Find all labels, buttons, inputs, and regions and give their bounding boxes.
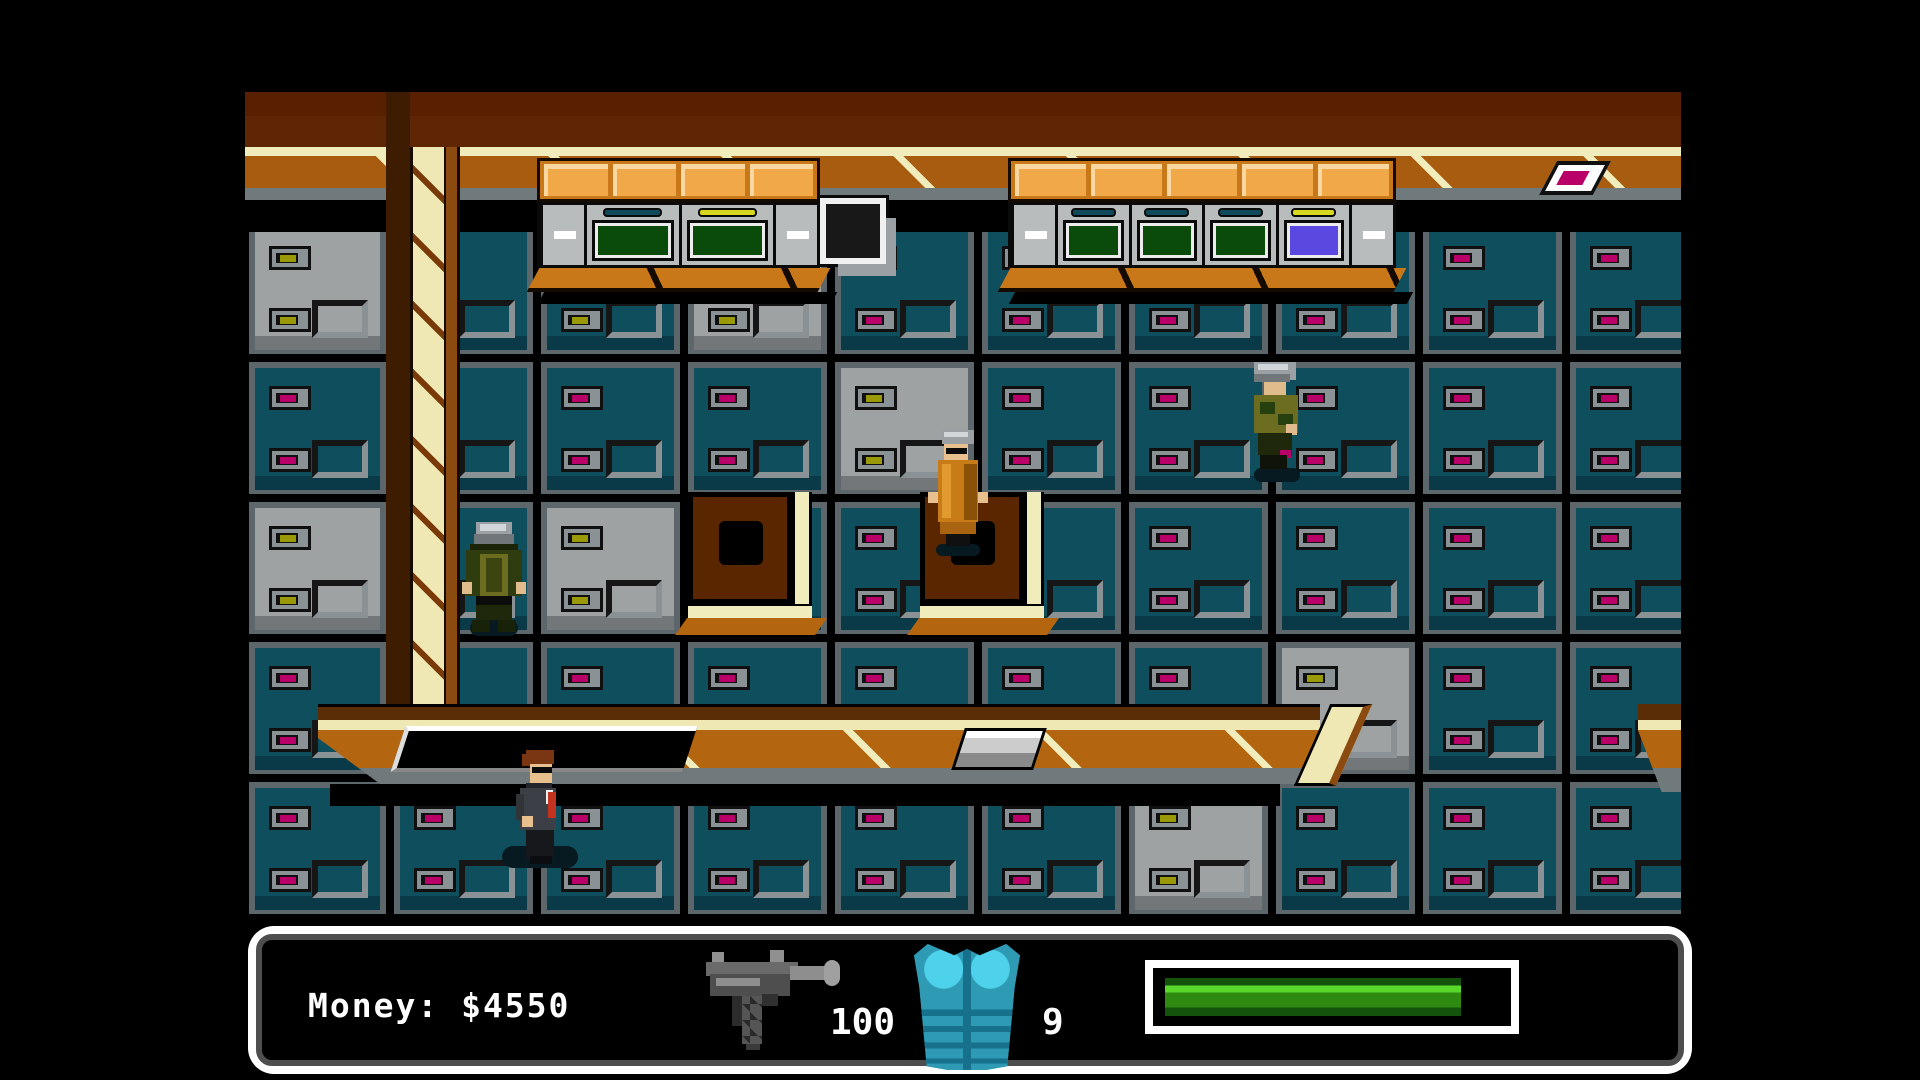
locker-face bbox=[541, 502, 680, 634]
locker-vent bbox=[1047, 580, 1103, 618]
locker-handle bbox=[708, 386, 750, 410]
locker-shade bbox=[1576, 476, 1681, 490]
locker-shade bbox=[1282, 616, 1409, 630]
locker-handle bbox=[1149, 868, 1191, 892]
character-part bbox=[978, 492, 988, 503]
locker-handle bbox=[561, 308, 603, 332]
bank-window-panel bbox=[1091, 164, 1162, 196]
locker-handle bbox=[269, 386, 311, 410]
locker-handle bbox=[855, 448, 897, 472]
bank-window-panel bbox=[613, 164, 677, 196]
locker-handle-bar bbox=[425, 877, 441, 884]
locker-shade bbox=[841, 336, 968, 350]
locker-shade bbox=[547, 896, 674, 910]
locker-handle-bar bbox=[280, 877, 296, 884]
locker-shade bbox=[1135, 616, 1262, 630]
character-part bbox=[486, 558, 502, 592]
locker-handle bbox=[1443, 246, 1485, 270]
machine-screen-green bbox=[690, 223, 766, 258]
character-part bbox=[532, 767, 552, 773]
locker-handle bbox=[1443, 526, 1485, 550]
locker-shade bbox=[694, 476, 821, 490]
machine-unit bbox=[1202, 205, 1276, 265]
uzi-icon-part bbox=[762, 994, 778, 1006]
locker-shade bbox=[1282, 336, 1409, 350]
uzi-icon-part bbox=[790, 966, 826, 980]
locker-face bbox=[1423, 362, 1562, 494]
machine-end-cap bbox=[773, 205, 817, 265]
vent-sill bbox=[905, 618, 1059, 638]
machine-slot bbox=[698, 208, 757, 217]
locker-vent bbox=[1194, 860, 1250, 898]
locker-handle bbox=[269, 308, 311, 332]
machine-screen-purple bbox=[1287, 223, 1342, 258]
walkway-trapdoor bbox=[951, 728, 1047, 770]
locker-handle bbox=[855, 386, 897, 410]
character-part bbox=[548, 792, 556, 818]
locker-handle bbox=[1149, 666, 1191, 690]
locker-handle-bar bbox=[1160, 877, 1176, 884]
locker-handle-bar bbox=[280, 737, 296, 744]
locker-handle bbox=[561, 448, 603, 472]
locker-handle-bar bbox=[719, 877, 735, 884]
health-bar-fill bbox=[1165, 978, 1461, 1016]
locker-handle-bar bbox=[1160, 675, 1176, 682]
bank-window-panel bbox=[750, 164, 814, 196]
character-part bbox=[516, 582, 526, 594]
locker-shade bbox=[1576, 616, 1681, 630]
locker-handle bbox=[1590, 588, 1632, 612]
locker-handle-bar bbox=[1601, 255, 1617, 262]
locker-handle bbox=[855, 308, 897, 332]
vent-sill bbox=[673, 618, 827, 638]
locker-handle bbox=[561, 588, 603, 612]
locker-handle bbox=[1296, 868, 1338, 892]
locker-handle-bar bbox=[866, 317, 882, 324]
locker-vent bbox=[1341, 440, 1397, 478]
machine-bank-right bbox=[1008, 158, 1396, 306]
machine-slot bbox=[1071, 208, 1116, 217]
ceiling-checker-band bbox=[245, 92, 1681, 116]
machine-bank-left bbox=[537, 158, 820, 306]
teal-locker bbox=[245, 358, 390, 498]
locker-face bbox=[1423, 222, 1562, 354]
locker-handle-bar bbox=[1013, 317, 1029, 324]
teal-locker bbox=[1419, 358, 1566, 498]
locker-handle-bar bbox=[1454, 395, 1470, 402]
machine-cap-dash bbox=[1363, 231, 1385, 239]
locker-shade bbox=[841, 896, 968, 910]
locker-vent bbox=[1194, 580, 1250, 618]
locker-handle bbox=[1149, 588, 1191, 612]
teal-locker bbox=[1419, 638, 1566, 778]
locker-handle-bar bbox=[1307, 597, 1323, 604]
locker-handle bbox=[1443, 868, 1485, 892]
locker-handle bbox=[1149, 308, 1191, 332]
locker-handle bbox=[1443, 588, 1485, 612]
locker-handle-bar bbox=[1601, 317, 1617, 324]
ledge-paper-mark bbox=[1556, 171, 1589, 185]
machine-end-cap bbox=[1349, 205, 1393, 265]
bank-sill bbox=[998, 268, 1407, 292]
teal-locker bbox=[1272, 498, 1419, 638]
vent-frame-right bbox=[792, 492, 812, 618]
character-part bbox=[944, 432, 968, 437]
locker-vent bbox=[1635, 440, 1681, 478]
bank-machine-row bbox=[1008, 202, 1396, 268]
ledge-shadow bbox=[245, 200, 1681, 232]
locker-handle bbox=[1443, 308, 1485, 332]
character-part bbox=[1260, 402, 1275, 414]
locker-handle-bar bbox=[1454, 877, 1470, 884]
vent-frame-bottom bbox=[688, 604, 812, 618]
locker-handle bbox=[269, 728, 311, 752]
character-part bbox=[1258, 364, 1288, 370]
locker-vent bbox=[1635, 860, 1681, 898]
character-part bbox=[1254, 374, 1290, 382]
locker-vent bbox=[1635, 580, 1681, 618]
machine-end-cap bbox=[540, 205, 584, 265]
machine-cap-dash bbox=[554, 231, 576, 239]
character-part bbox=[476, 596, 512, 605]
teal-locker bbox=[1566, 498, 1681, 638]
walkway-top-band bbox=[1638, 704, 1681, 720]
locker-handle bbox=[1002, 448, 1044, 472]
locker-handle bbox=[269, 246, 311, 270]
locker-shade bbox=[1429, 476, 1556, 490]
locker-shade bbox=[547, 616, 674, 630]
locker-shade bbox=[255, 476, 380, 490]
locker-handle bbox=[1296, 308, 1338, 332]
bank-window-panel bbox=[1015, 164, 1086, 196]
bank-window-panel bbox=[544, 164, 608, 196]
character-part bbox=[476, 605, 512, 620]
bank-window-panel bbox=[681, 164, 745, 196]
machine-unit bbox=[1055, 205, 1129, 265]
character-part bbox=[928, 492, 938, 503]
locker-shade bbox=[255, 896, 380, 910]
support-beam-side bbox=[446, 147, 460, 708]
locker-shade bbox=[1576, 896, 1681, 910]
locker-handle-bar bbox=[1601, 815, 1617, 822]
locker-shade bbox=[694, 336, 821, 350]
character-part bbox=[964, 464, 977, 520]
locker-face bbox=[1423, 642, 1562, 774]
uzi-icon-part bbox=[716, 978, 760, 986]
locker-handle-bar bbox=[719, 675, 735, 682]
locker-handle-bar bbox=[572, 317, 588, 324]
locker-handle-bar bbox=[719, 457, 735, 464]
locker-vent bbox=[1194, 440, 1250, 478]
character-part bbox=[946, 534, 970, 546]
locker-handle-bar bbox=[1160, 395, 1176, 402]
machine-screen-green bbox=[1066, 223, 1121, 258]
character-agent-orange bbox=[928, 430, 1008, 560]
locker-face bbox=[1129, 362, 1268, 494]
machine-screen-green bbox=[1213, 223, 1268, 258]
locker-handle bbox=[1296, 526, 1338, 550]
locker-handle-bar bbox=[280, 597, 296, 604]
character-part bbox=[942, 464, 951, 518]
locker-handle bbox=[1296, 666, 1338, 690]
teal-locker bbox=[1419, 498, 1566, 638]
locker-handle-bar bbox=[1454, 255, 1470, 262]
locker-handle-bar bbox=[866, 815, 882, 822]
ammo-count: 100 bbox=[830, 1002, 895, 1043]
locker-handle-bar bbox=[1601, 457, 1617, 464]
locker-vent bbox=[1488, 860, 1544, 898]
teal-locker bbox=[1419, 218, 1566, 358]
locker-handle bbox=[1590, 666, 1632, 690]
locker-handle bbox=[708, 448, 750, 472]
character-part bbox=[530, 856, 552, 864]
locker-handle-bar bbox=[1307, 535, 1323, 542]
locker-handle-bar bbox=[1454, 535, 1470, 542]
locker-vent bbox=[1341, 860, 1397, 898]
money-label: Money: $4550 bbox=[308, 986, 570, 1025]
locker-handle-bar bbox=[1013, 877, 1029, 884]
locker-handle-bar bbox=[1454, 317, 1470, 324]
ledge-surface bbox=[245, 156, 1681, 188]
bank-window-row bbox=[537, 158, 820, 202]
character-part bbox=[1260, 455, 1287, 469]
locker-handle-bar bbox=[280, 815, 296, 822]
locker-handle bbox=[708, 666, 750, 690]
locker-vent bbox=[312, 300, 368, 338]
locker-handle bbox=[855, 806, 897, 830]
game-screen[interactable]: Money: $4550 100 9 bbox=[0, 0, 1920, 1080]
locker-handle-bar bbox=[866, 535, 882, 542]
locker-handle bbox=[1002, 806, 1044, 830]
machine-cap-dash bbox=[787, 231, 809, 239]
locker-handle-bar bbox=[1160, 457, 1176, 464]
locker-vent bbox=[459, 300, 515, 338]
teal-locker bbox=[1419, 778, 1566, 918]
bank-window-panel bbox=[1318, 164, 1389, 196]
locker-vent bbox=[1488, 440, 1544, 478]
ledge-top-edge bbox=[245, 147, 1681, 156]
locker-shade bbox=[1429, 756, 1556, 770]
locker-handle-bar bbox=[866, 597, 882, 604]
locker-face bbox=[1570, 362, 1681, 494]
locker-handle-bar bbox=[1160, 815, 1176, 822]
locker-handle-bar bbox=[280, 457, 296, 464]
locker-shade bbox=[255, 616, 380, 630]
locker-handle-bar bbox=[1307, 675, 1323, 682]
locker-vent bbox=[1488, 580, 1544, 618]
locker-handle bbox=[414, 868, 456, 892]
locker-shade bbox=[255, 336, 380, 350]
locker-handle-bar bbox=[866, 675, 882, 682]
character-part bbox=[462, 582, 472, 594]
locker-handle-bar bbox=[280, 675, 296, 682]
locker-handle bbox=[855, 868, 897, 892]
locker-shade bbox=[547, 336, 674, 350]
locker-handle-bar bbox=[1601, 395, 1617, 402]
locker-handle bbox=[1149, 806, 1191, 830]
locker-handle-bar bbox=[1454, 675, 1470, 682]
locker-shade bbox=[988, 336, 1115, 350]
teal-locker bbox=[1566, 778, 1681, 918]
support-beam-shadow bbox=[386, 92, 410, 708]
locker-vent bbox=[900, 300, 956, 338]
character-player-suit bbox=[500, 750, 580, 880]
locker-shade bbox=[1135, 476, 1262, 490]
locker-handle bbox=[269, 588, 311, 612]
locker-handle-bar bbox=[719, 317, 735, 324]
locker-handle-bar bbox=[1307, 815, 1323, 822]
locker-face bbox=[1276, 502, 1415, 634]
vent-frame-bottom bbox=[920, 604, 1044, 618]
locker-handle-bar bbox=[719, 395, 735, 402]
locker-handle-bar bbox=[572, 535, 588, 542]
walkway-shadow bbox=[330, 784, 1280, 806]
locker-vent bbox=[900, 860, 956, 898]
locker-vent bbox=[459, 440, 515, 478]
gray-locker bbox=[245, 218, 390, 358]
vent-interior bbox=[688, 492, 792, 604]
locker-handle-bar bbox=[1601, 675, 1617, 682]
machine-unit bbox=[584, 205, 679, 265]
vent-frame-right bbox=[1024, 492, 1044, 618]
locker-shade bbox=[1135, 336, 1262, 350]
character-soldier-back bbox=[462, 522, 542, 652]
locker-handle-bar bbox=[280, 255, 296, 262]
locker-vent bbox=[1047, 860, 1103, 898]
machine-end-cap bbox=[1011, 205, 1055, 265]
locker-handle-bar bbox=[1013, 675, 1029, 682]
locker-handle bbox=[561, 386, 603, 410]
locker-face bbox=[1129, 502, 1268, 634]
locker-handle bbox=[708, 806, 750, 830]
locker-handle-bar bbox=[1013, 395, 1029, 402]
character-part bbox=[1254, 468, 1300, 482]
locker-face bbox=[1276, 782, 1415, 914]
locker-shade bbox=[1429, 616, 1556, 630]
machine-unit bbox=[1276, 205, 1350, 265]
locker-handle-bar bbox=[719, 815, 735, 822]
locker-face bbox=[1570, 222, 1681, 354]
health-bar-track bbox=[1153, 968, 1511, 1026]
locker-face bbox=[1423, 502, 1562, 634]
locker-face bbox=[688, 362, 827, 494]
locker-handle bbox=[1149, 526, 1191, 550]
speaker-box bbox=[820, 198, 886, 264]
character-part bbox=[472, 620, 490, 632]
ledge-front-edge bbox=[245, 188, 1681, 200]
uzi-icon-part bbox=[824, 960, 840, 986]
bank-shadow bbox=[538, 292, 837, 304]
bank-window-row bbox=[1008, 158, 1396, 202]
locker-handle bbox=[561, 666, 603, 690]
health-bar bbox=[1145, 960, 1519, 1034]
locker-handle bbox=[708, 868, 750, 892]
uzi-icon-magazine bbox=[742, 996, 762, 1044]
locker-shade bbox=[1282, 896, 1409, 910]
teal-locker bbox=[1566, 218, 1681, 358]
locker-handle-bar bbox=[866, 395, 882, 402]
locker-vent bbox=[606, 860, 662, 898]
locker-handle bbox=[1590, 386, 1632, 410]
game-scene[interactable] bbox=[245, 80, 1681, 924]
locker-vent bbox=[1635, 300, 1681, 338]
locker-handle bbox=[414, 806, 456, 830]
locker-handle-bar bbox=[1160, 317, 1176, 324]
locker-handle bbox=[1590, 728, 1632, 752]
teal-locker bbox=[1566, 358, 1681, 498]
locker-handle bbox=[269, 868, 311, 892]
armor-count: 9 bbox=[1042, 1002, 1064, 1043]
character-part bbox=[522, 816, 533, 827]
locker-face bbox=[249, 222, 386, 354]
character-part bbox=[946, 448, 967, 454]
locker-handle bbox=[1443, 806, 1485, 830]
character-part bbox=[1264, 382, 1286, 395]
locker-handle bbox=[269, 526, 311, 550]
locker-handle bbox=[855, 666, 897, 690]
locker-handle bbox=[1443, 666, 1485, 690]
bank-machine-row bbox=[537, 202, 820, 268]
locker-vent bbox=[1047, 440, 1103, 478]
vent-hole bbox=[719, 521, 763, 565]
body-armor-icon bbox=[914, 944, 1020, 1070]
teal-locker bbox=[537, 358, 684, 498]
locker-handle bbox=[1590, 806, 1632, 830]
locker-handle-bar bbox=[1454, 815, 1470, 822]
locker-handle bbox=[708, 308, 750, 332]
locker-handle-bar bbox=[1160, 535, 1176, 542]
locker-handle bbox=[1002, 666, 1044, 690]
locker-vent bbox=[1488, 720, 1544, 758]
locker-face bbox=[249, 362, 386, 494]
locker-handle bbox=[269, 806, 311, 830]
bank-window-panel bbox=[1167, 164, 1238, 196]
locker-handle bbox=[855, 526, 897, 550]
locker-handle-bar bbox=[572, 395, 588, 402]
locker-handle-bar bbox=[1160, 597, 1176, 604]
uzi-icon bbox=[706, 950, 846, 1054]
character-part bbox=[526, 830, 554, 858]
locker-handle bbox=[1590, 246, 1632, 270]
locker-vent bbox=[1341, 580, 1397, 618]
locker-handle-bar bbox=[1013, 815, 1029, 822]
machine-slot bbox=[1291, 208, 1336, 217]
locker-handle bbox=[269, 666, 311, 690]
locker-shade bbox=[547, 476, 674, 490]
locker-handle bbox=[1590, 448, 1632, 472]
locker-handle bbox=[269, 448, 311, 472]
locker-handle bbox=[1590, 308, 1632, 332]
bank-sill bbox=[527, 268, 831, 292]
locker-handle-bar bbox=[1601, 737, 1617, 744]
locker-face bbox=[1570, 782, 1681, 914]
locker-vent bbox=[606, 580, 662, 618]
locker-shade bbox=[988, 896, 1115, 910]
machine-unit bbox=[1129, 205, 1203, 265]
machine-slot bbox=[603, 208, 662, 217]
locker-handle-bar bbox=[1454, 737, 1470, 744]
teal-locker bbox=[1272, 778, 1419, 918]
walkway-top-band bbox=[318, 704, 1320, 720]
bank-shadow bbox=[1009, 292, 1413, 304]
gray-locker bbox=[245, 498, 390, 638]
locker-handle bbox=[1149, 386, 1191, 410]
locker-face bbox=[249, 502, 386, 634]
machine-screen-green bbox=[1140, 223, 1195, 258]
locker-vent bbox=[1488, 300, 1544, 338]
locker-handle bbox=[1443, 386, 1485, 410]
locker-vent bbox=[606, 440, 662, 478]
